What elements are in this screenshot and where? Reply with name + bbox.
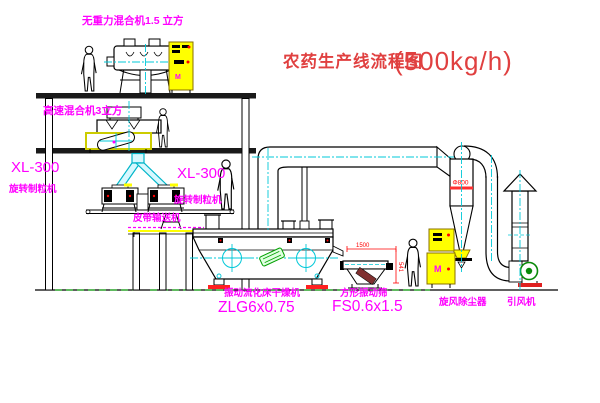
label-granulator-right-model: XL-300 [177, 165, 225, 182]
induced-draft-fan [509, 261, 542, 287]
label-screen-model: FS0.6x1.5 [332, 298, 403, 315]
label-top-mixer: 无重力混合机1.5 立方 [81, 14, 184, 27]
screen-height-dim: 541 [397, 262, 403, 273]
cabinet-mark-upper: M [175, 74, 181, 81]
cad-flow-diagram: M [0, 0, 600, 403]
screen-length-dim: 1500 [356, 243, 370, 249]
label-dryer-model: ZLG6x0.75 [218, 299, 295, 316]
exhaust-duct [252, 147, 456, 232]
diagram-capacity: (500kg/h) [394, 46, 513, 76]
cyclone-diameter-label: Φ800 [453, 180, 469, 187]
label-mid-mixer: 高速混合机3立方 [43, 104, 123, 117]
cabinet-mark-ground: M [434, 264, 442, 274]
person-figure [157, 109, 170, 147]
label-fan: 引风机 [507, 296, 536, 308]
fluid-bed-dryer [190, 215, 343, 289]
process-flow-drawing: M [0, 0, 600, 403]
label-dryer-name: 振动流化床干燥机 [224, 287, 301, 299]
control-cabinet-upper: M [169, 42, 193, 93]
person-figure [405, 239, 420, 286]
center-discharge-chute [137, 194, 148, 210]
person-figure [81, 46, 96, 91]
label-cyclone: 旋风除尘器 [438, 296, 487, 308]
granulator-left [102, 184, 138, 213]
control-cabinet-ground: M [427, 229, 455, 288]
label-granulator-left-model: XL-300 [11, 159, 59, 176]
y-chute [116, 154, 168, 187]
label-granulator-right-name: 旋转制粒机 [173, 194, 222, 206]
vibrating-screen [340, 246, 399, 288]
label-granulator-left-name: 旋转制粒机 [8, 183, 57, 195]
label-belt-conveyor: 皮带输送机 [132, 212, 181, 224]
